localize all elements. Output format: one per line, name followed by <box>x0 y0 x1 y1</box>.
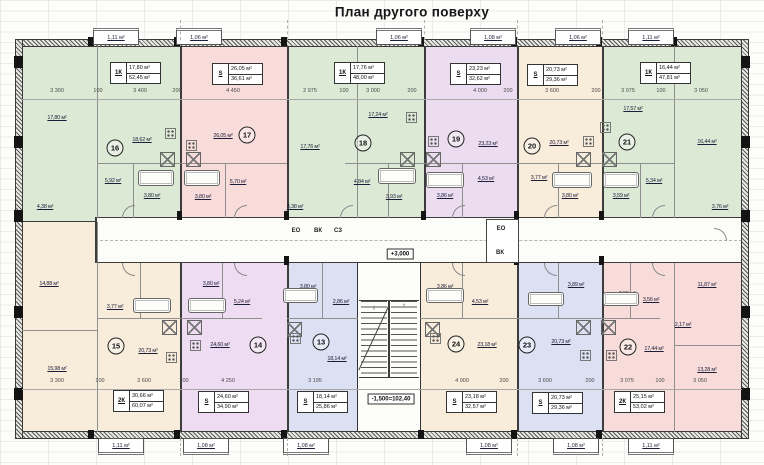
partition <box>225 163 226 218</box>
unit-18-number: 18 <box>355 135 372 152</box>
balcony-area-label: 1,06 м² <box>190 35 208 41</box>
stove-icon <box>600 122 611 133</box>
room-area-label: 3,80 м² <box>195 194 211 200</box>
unit-21-number: 21 <box>619 134 636 151</box>
dimension-label: 3 600 <box>538 378 552 384</box>
balcony-20: 1,06 м² <box>555 28 601 45</box>
partition <box>287 318 358 319</box>
balcony-15: 1,11 м² <box>98 438 144 455</box>
unit-22-number: 22 <box>620 339 637 356</box>
corridor-level-annotation: +3,000 <box>387 249 414 260</box>
shower-icon <box>576 320 591 335</box>
wall-pier <box>741 388 750 400</box>
balcony-area-label: 1,08 м² <box>297 443 315 449</box>
balcony-18: 1,06 м² <box>376 28 422 45</box>
bathtub-icon <box>603 172 639 188</box>
dimension-label: 100 <box>95 378 104 384</box>
dimension-label: 100 <box>655 378 664 384</box>
wall <box>22 221 95 223</box>
total-area-value: 32,62 м² <box>467 75 500 85</box>
stair-stringer <box>388 301 390 377</box>
dimension-label: 4 000 <box>473 88 487 94</box>
balcony-area-label: 1,06 м² <box>569 35 587 41</box>
bathtub-icon <box>528 292 564 306</box>
room-area-value: 25,15 м² <box>631 392 664 403</box>
stair-down-arrow: ↓ <box>372 305 376 312</box>
room-area-label: 3,89 м² <box>568 282 584 288</box>
unit-16-info-box: 1К17,80 м²52,45 м² <box>110 62 161 84</box>
wall <box>424 46 426 218</box>
dimension-label: 200 <box>407 88 416 94</box>
shower-icon <box>160 152 175 167</box>
unit-16-number: 16 <box>107 140 124 157</box>
room-area-value: 17,76 м² <box>351 63 384 74</box>
partition <box>22 330 97 331</box>
room-area-label: 3,59 м² <box>613 193 629 199</box>
room-area-label: 26,05 м² <box>213 133 232 139</box>
unit-19-info-box: S23,23 м²32,62 м² <box>450 63 501 85</box>
balcony-area-label: 1,11 м² <box>107 35 124 41</box>
stove-icon <box>165 128 176 139</box>
balcony-area-label: 1,08 м² <box>197 443 215 449</box>
stair-flight-right <box>391 301 417 377</box>
dimension-label: 100 <box>339 88 348 94</box>
unit-13-number: 13 <box>313 334 330 351</box>
stove-icon <box>583 136 594 147</box>
room-area-label: 3,76 м² <box>712 204 728 210</box>
wall-pier <box>741 136 750 148</box>
partition <box>517 318 602 319</box>
dimension-label: 3 400 <box>133 88 147 94</box>
partition <box>558 263 559 318</box>
shaft-label-eo: ЕО <box>292 228 301 234</box>
corridor-centerline <box>95 240 742 241</box>
total-area-value: 32,57 м² <box>463 403 496 413</box>
room-area-label: 13,28 м² <box>697 367 716 373</box>
room-area-label: 4,84 м² <box>354 179 370 185</box>
wall-pier <box>741 56 750 68</box>
bathtub-icon <box>188 298 226 313</box>
bathtub-icon <box>133 298 171 313</box>
room-area-label: 20,73 м² <box>549 140 568 146</box>
dimension-label: 4 450 <box>226 88 240 94</box>
stove-icon <box>190 340 201 351</box>
unit-type-label: 2К <box>114 391 130 411</box>
room-area-value: 23,23 м² <box>467 64 500 75</box>
room-area-label: 17,44 м² <box>644 346 663 352</box>
room-area-label: 11,87 м² <box>698 282 717 288</box>
stove-icon <box>290 333 301 344</box>
floor-plan-canvas: План другого поверху <box>0 0 764 465</box>
room-area-label: 17,57 м² <box>623 106 642 112</box>
balcony-area-label: 1,11 м² <box>642 443 659 449</box>
unit-15-extension <box>22 222 95 263</box>
unit-14-info-box: S24,60 м²34,90 м² <box>198 391 249 413</box>
dimension-label: 3 075 <box>620 378 634 384</box>
unit-24-info-box: S23,18 м²32,57 м² <box>446 391 497 413</box>
dimension-label: 3 300 <box>50 378 64 384</box>
shower-icon <box>186 152 201 167</box>
room-area-value: 20,73 м² <box>544 65 577 76</box>
wall-pier <box>284 256 289 265</box>
balcony-area-label: 1,08 м² <box>480 443 498 449</box>
wall-pier <box>741 306 750 318</box>
balcony-area-label: 1,11 м² <box>112 443 129 449</box>
total-area-value: 29,36 м² <box>549 404 582 414</box>
balcony-23: 1,08 м² <box>553 438 599 455</box>
stair-level-annotation: -1,500=102,40 <box>368 394 415 405</box>
shaft-label-sz: СЗ <box>334 228 342 234</box>
extension-line <box>180 20 181 40</box>
room-area-label: 16,44 м² <box>697 139 716 145</box>
unit-type-label: S <box>533 393 549 413</box>
shower-icon <box>602 152 617 167</box>
room-area-label: 14,88 м² <box>39 281 58 287</box>
unit-19-number: 19 <box>448 131 465 148</box>
bathtub-icon <box>378 168 416 184</box>
room-area-label: 17,24 м² <box>368 112 387 118</box>
room-area-label: 5,34 м² <box>646 178 662 184</box>
wall-pier <box>14 56 23 68</box>
unit-23-number: 23 <box>519 337 536 354</box>
wall-pier <box>284 211 289 220</box>
room-area-label: 23,23 м² <box>478 141 497 147</box>
extension-line <box>602 438 603 456</box>
unit-21-info-box: 1К16,44 м²47,81 м² <box>640 62 691 84</box>
dimension-label: 3 050 <box>693 378 707 384</box>
wall-pier <box>418 430 424 439</box>
partition <box>602 318 660 319</box>
room-area-label: 3,93 м² <box>386 194 402 200</box>
room-area-label: 5,24 м² <box>234 299 250 305</box>
unit-17-number: 17 <box>239 127 256 144</box>
total-area-value: 60,07 м² <box>130 402 163 412</box>
partition <box>674 263 675 432</box>
dimension-label: 2 975 <box>303 88 317 94</box>
wall-pier <box>14 306 23 318</box>
room-area-label: 3,80 м² <box>203 281 219 287</box>
unit-17-info-box: S26,05 м²36,61 м² <box>212 63 263 85</box>
shower-icon <box>601 320 616 335</box>
wall <box>602 263 604 432</box>
unit-type-label: 1К <box>111 63 127 83</box>
room-area-label: 4,38 м² <box>37 204 53 210</box>
extension-line <box>287 438 288 456</box>
dimension-label: 3 195 <box>308 378 322 384</box>
partition <box>97 222 98 432</box>
bathtub-icon <box>283 288 318 303</box>
dimension-label: 3 050 <box>694 88 708 94</box>
room-area-label: 23,18 м² <box>477 342 496 348</box>
room-area-value: 24,60 м² <box>215 392 248 403</box>
unit-type-label: S <box>298 392 314 412</box>
total-area-value: 29,36 м² <box>544 76 577 86</box>
room-area-label: 3,80 м² <box>144 193 160 199</box>
balcony-area-label: 1,11 м² <box>642 35 659 41</box>
room-area-label: 18,14 м² <box>327 356 346 362</box>
room-area-label: 3,80 м² <box>562 193 578 199</box>
dimension-label: 3 600 <box>545 88 559 94</box>
room-area-value: 30,66 м² <box>130 391 163 402</box>
total-area-value: 52,45 м² <box>127 74 160 84</box>
dimension-label: 3 075 <box>621 88 635 94</box>
stair-up-arrow: ↑ <box>402 303 406 310</box>
partition <box>97 318 180 319</box>
room-area-label: 2,17 м² <box>675 322 691 328</box>
unit-type-label: S <box>199 392 215 412</box>
unit-type-label: S <box>451 64 467 84</box>
balcony-13: 1,08 м² <box>283 438 329 455</box>
unit-type-label: S <box>528 65 544 85</box>
partition <box>674 345 742 346</box>
stove-icon <box>580 350 591 361</box>
dimension-label: 3 300 <box>50 88 64 94</box>
room-area-value: 16,44 м² <box>657 63 690 74</box>
dimension-label: 200 <box>172 88 181 94</box>
unit-type-label: 2К <box>615 392 631 412</box>
balcony-14: 1,08 м² <box>183 438 229 455</box>
dimension-label: 200 <box>585 378 594 384</box>
room-area-label: 2,86 м² <box>333 299 349 305</box>
shower-icon <box>187 320 202 335</box>
stove-icon <box>166 352 177 363</box>
room-area-label: 3,77 м² <box>107 304 123 310</box>
unit-20-info-box: S20,73 м²29,36 м² <box>527 64 578 86</box>
total-area-value: 34,90 м² <box>215 403 248 413</box>
unit-23-info-box: S20,73 м²29,36 м² <box>532 392 583 414</box>
shower-icon <box>162 320 177 335</box>
room-area-label: 17,80 м² <box>47 115 66 121</box>
stove-icon <box>186 140 197 151</box>
wall-pier <box>599 211 604 220</box>
room-area-label: 5,70 м² <box>230 179 246 185</box>
total-area-value: 25,86 м² <box>314 403 347 413</box>
shower-icon <box>576 152 591 167</box>
total-area-value: 53,02 м² <box>631 403 664 413</box>
balcony-22: 1,11 м² <box>628 438 674 455</box>
unit-22-info-box: 2К25,15 м²53,02 м² <box>614 391 665 413</box>
plan-title: План другого поверху <box>335 5 489 20</box>
stove-icon <box>606 350 617 361</box>
wall <box>95 217 742 219</box>
wall-pier <box>741 210 750 222</box>
balcony-area-label: 1,08 м² <box>484 35 502 41</box>
room-area-label: 4,53 м² <box>478 176 494 182</box>
room-area-label: 5,92 м² <box>105 178 121 184</box>
partition <box>640 163 641 218</box>
wall <box>287 46 289 218</box>
dimension-label: 200 <box>503 88 512 94</box>
balcony-16: 1,11 м² <box>93 28 139 45</box>
unit-type-label: 1К <box>335 63 351 83</box>
room-area-label: 20,73 м² <box>551 339 570 345</box>
unit-type-label: 1К <box>641 63 657 83</box>
extension-line <box>517 438 518 456</box>
dimension-label: 200 <box>591 88 600 94</box>
wall <box>180 46 182 218</box>
wall-pier <box>421 211 426 220</box>
dimension-label: 100 <box>656 88 665 94</box>
stair-landing-line <box>359 377 419 378</box>
wall <box>517 46 519 218</box>
extension-line <box>424 20 425 40</box>
balcony-area-label: 1,06 м² <box>390 35 408 41</box>
room-area-label: 4,53 м² <box>472 299 488 305</box>
outer-wall-right <box>742 40 748 438</box>
bathtub-icon <box>138 170 174 186</box>
dimension-label: 200 <box>179 378 188 384</box>
bathtub-icon <box>603 292 639 306</box>
shower-icon <box>426 152 441 167</box>
balcony-area-label: 1,08 м² <box>567 443 585 449</box>
unit-20-number: 20 <box>524 138 541 155</box>
stair-flight-left <box>361 301 387 377</box>
unit-15-info-box: 2К30,66 м²60,07 м² <box>113 390 164 412</box>
room-area-label: 3,77 м² <box>531 175 547 181</box>
room-area-label: 3,38 м² <box>287 204 303 210</box>
dimension-label: 200 <box>499 378 508 384</box>
wall-pier <box>177 211 182 220</box>
room-area-label: 15,98 м² <box>47 366 66 372</box>
dimension-label: 3 600 <box>137 378 151 384</box>
shower-icon <box>400 152 415 167</box>
extension-line <box>180 438 181 456</box>
stove-icon <box>406 112 417 123</box>
partition <box>420 318 517 319</box>
partition <box>180 318 262 319</box>
total-area-value: 48,00 м² <box>351 74 384 84</box>
unit-15-number: 15 <box>108 338 125 355</box>
wall <box>95 262 742 264</box>
bathtub-icon <box>552 172 592 188</box>
balcony-24: 1,08 м² <box>466 438 512 455</box>
dimension-label: 4 250 <box>221 378 235 384</box>
unit-type-label: S <box>447 392 463 412</box>
extension-line <box>287 20 288 40</box>
room-area-value: 23,18 м² <box>463 392 496 403</box>
room-area-label: 20,73 м² <box>138 348 157 354</box>
dimension-label: 3 000 <box>366 88 380 94</box>
bathtub-icon <box>426 172 464 188</box>
partition <box>322 263 323 318</box>
stove-icon <box>428 136 439 147</box>
unit-14-number: 14 <box>250 337 267 354</box>
stove-icon <box>430 333 441 344</box>
bathtub-icon <box>426 288 464 303</box>
shaft-label-eo-right: ЕО <box>497 226 506 232</box>
balcony-19: 1,08 м² <box>470 28 516 45</box>
partition <box>97 46 98 218</box>
total-area-value: 36,61 м² <box>229 75 262 85</box>
wall-pier <box>88 430 94 439</box>
room-area-label: 3,56 м² <box>643 297 659 303</box>
unit-13-info-box: S18,14 м²25,86 м² <box>297 391 348 413</box>
room-area-label: 3,86 м² <box>437 193 453 199</box>
room-area-value: 18,14 м² <box>314 392 347 403</box>
room-area-label: 18,62 м² <box>132 137 151 143</box>
shaft-label-vk: ВК <box>314 228 322 234</box>
balcony-17: 1,06 м² <box>176 28 222 45</box>
extension-line <box>602 20 603 40</box>
unit-type-label: S <box>213 64 229 84</box>
dimension-line-top <box>22 99 742 100</box>
wall <box>180 263 182 432</box>
unit-24-number: 24 <box>448 336 465 353</box>
dimension-label: 100 <box>93 88 102 94</box>
extension-line <box>517 20 518 40</box>
wall-pier <box>599 256 604 265</box>
room-area-value: 26,05 м² <box>229 64 262 75</box>
total-area-value: 47,81 м² <box>657 74 690 84</box>
room-area-label: 24,60 м² <box>210 342 229 348</box>
room-area-value: 17,80 м² <box>127 63 160 74</box>
room-area-value: 20,73 м² <box>549 393 582 404</box>
room-area-label: 17,76 м² <box>300 144 319 150</box>
wall-pier <box>14 136 23 148</box>
unit-18-info-box: 1К17,76 м²48,00 м² <box>334 62 385 84</box>
shaft-label-vk-right: ВК <box>496 250 504 256</box>
dimension-label: 4 000 <box>455 378 469 384</box>
wall-pier <box>14 210 23 222</box>
balcony-21: 1,11 м² <box>628 28 674 45</box>
bathtub-icon <box>184 170 220 186</box>
